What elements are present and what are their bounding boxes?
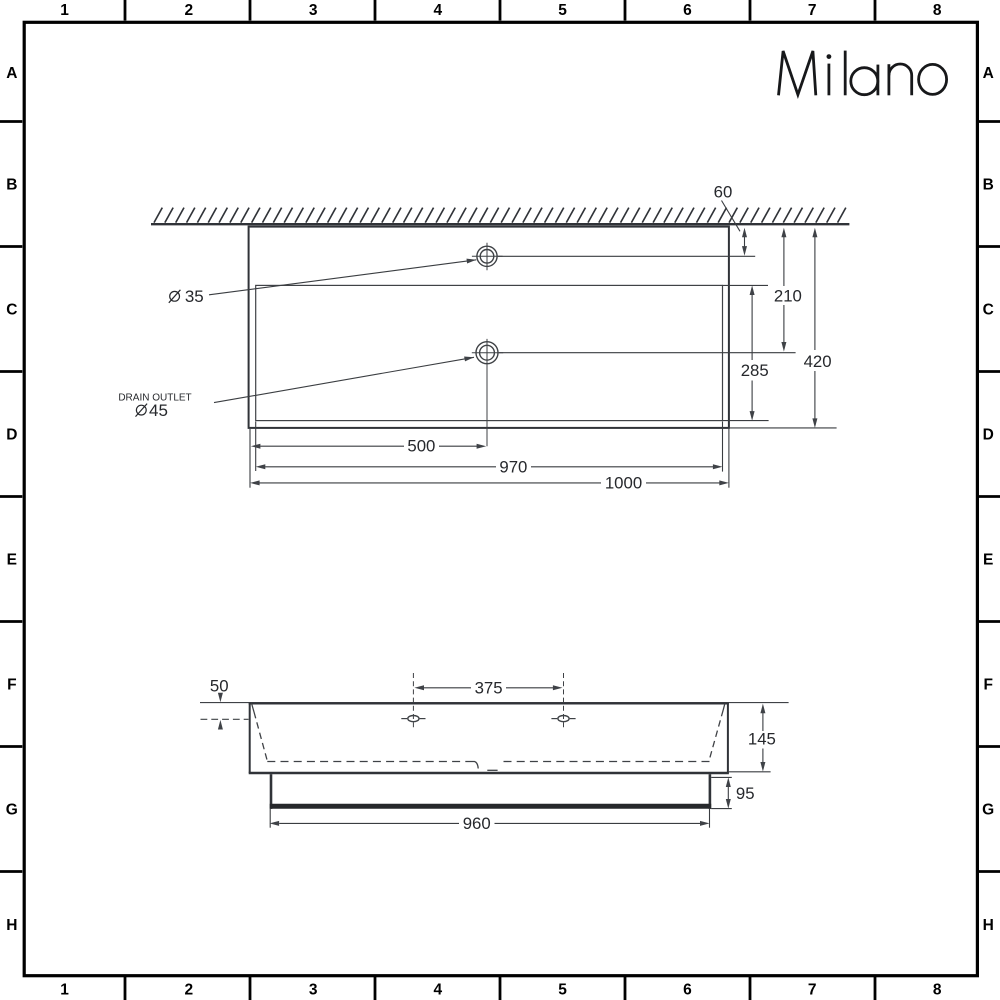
svg-text:145: 145 — [748, 730, 776, 749]
svg-text:H: H — [6, 917, 17, 934]
svg-text:H: H — [983, 917, 994, 934]
svg-text:970: 970 — [499, 457, 527, 476]
svg-text:210: 210 — [774, 286, 802, 305]
svg-text:B: B — [6, 177, 17, 194]
svg-text:1000: 1000 — [605, 473, 642, 492]
svg-text:2: 2 — [184, 981, 193, 998]
svg-text:C: C — [983, 302, 994, 319]
svg-text:5: 5 — [558, 981, 567, 998]
svg-text:375: 375 — [475, 679, 503, 698]
svg-text:8: 8 — [933, 2, 942, 19]
svg-text:35: 35 — [185, 287, 204, 306]
svg-text:G: G — [982, 802, 994, 819]
svg-text:3: 3 — [309, 981, 318, 998]
svg-text:1: 1 — [60, 2, 69, 19]
svg-text:6: 6 — [683, 981, 692, 998]
svg-text:B: B — [983, 177, 994, 194]
svg-text:2: 2 — [184, 2, 193, 19]
svg-text:45: 45 — [149, 401, 168, 420]
svg-text:G: G — [6, 802, 18, 819]
svg-text:3: 3 — [309, 2, 318, 19]
svg-text:95: 95 — [736, 784, 755, 803]
svg-text:6: 6 — [683, 2, 692, 19]
svg-text:50: 50 — [210, 677, 229, 696]
svg-text:8: 8 — [933, 981, 942, 998]
svg-text:F: F — [983, 677, 992, 694]
svg-text:D: D — [983, 427, 994, 444]
svg-text:285: 285 — [741, 361, 769, 380]
svg-text:E: E — [7, 552, 17, 569]
svg-text:5: 5 — [558, 2, 567, 19]
svg-text:1: 1 — [60, 981, 69, 998]
svg-text:7: 7 — [808, 2, 817, 19]
svg-text:C: C — [6, 302, 17, 319]
svg-text:D: D — [6, 427, 17, 444]
svg-text:A: A — [6, 65, 17, 82]
svg-text:960: 960 — [463, 814, 491, 833]
svg-text:F: F — [7, 677, 16, 694]
svg-text:7: 7 — [808, 981, 817, 998]
svg-text:500: 500 — [407, 437, 435, 456]
svg-text:420: 420 — [804, 352, 832, 371]
svg-text:A: A — [983, 65, 994, 82]
svg-text:E: E — [983, 552, 993, 569]
svg-text:4: 4 — [433, 981, 442, 998]
svg-text:60: 60 — [714, 182, 733, 201]
svg-text:4: 4 — [433, 2, 442, 19]
